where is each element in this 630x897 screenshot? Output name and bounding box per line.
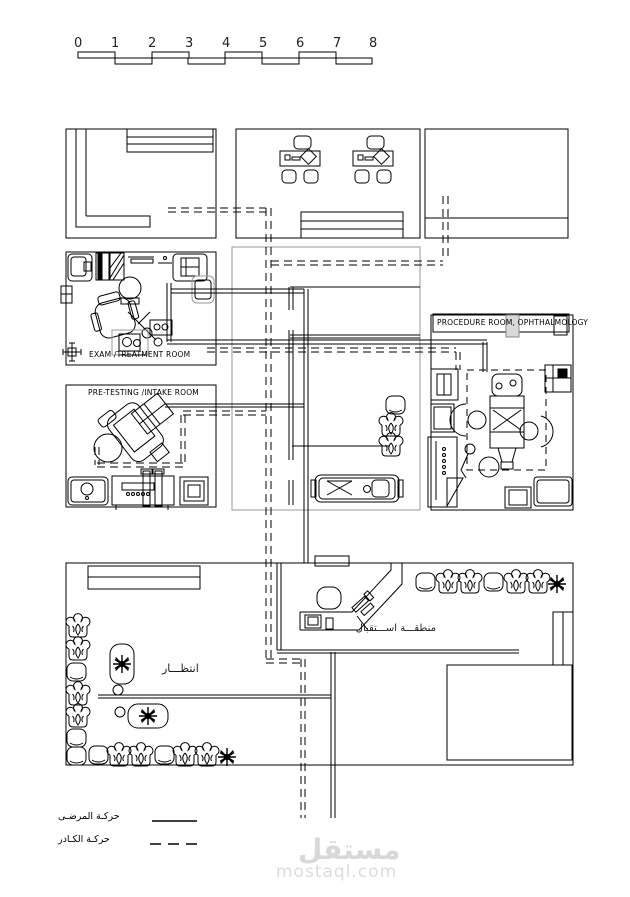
- scale-number: 6: [296, 36, 304, 51]
- exam-room-label: EXAM /TREATMENT ROOM: [89, 351, 190, 359]
- exam-stool: [119, 277, 141, 304]
- stretcher: [311, 475, 403, 502]
- pretest-counter-row: [68, 469, 208, 510]
- scale-number: 3: [185, 36, 193, 51]
- watermark: مستقل mostaql.com: [250, 834, 410, 889]
- exam-room: [61, 252, 216, 365]
- pretest-chair-cluster: [94, 393, 173, 467]
- reception-area-label: منطقـــة اســـتقبال: [360, 624, 436, 634]
- sink-unit: [68, 254, 92, 281]
- operating-table: [490, 374, 524, 469]
- procedure-room: [428, 314, 573, 510]
- central-hall-block: [232, 247, 420, 510]
- reception-block: [66, 556, 573, 766]
- inner-room: [447, 665, 572, 760]
- legend-patient-label: حركـة المرضـى: [58, 812, 128, 822]
- procedure-cabinets: [428, 365, 572, 508]
- reception-desk: [300, 563, 402, 630]
- scale-bar-graphic: [78, 52, 372, 64]
- exam-chair: [87, 288, 162, 355]
- scale-number: 7: [333, 36, 341, 51]
- coffee-tables: [110, 644, 168, 728]
- receptionist-chair: [317, 587, 341, 609]
- room-top-right: [425, 129, 568, 238]
- legend-staff-label: حركـة الكـادر: [58, 835, 128, 845]
- scale-number: 1: [111, 36, 119, 51]
- cabinets: [96, 253, 207, 281]
- procedure-room-label: PROCEDURE ROOM, OPHTHALMOLOGY: [437, 319, 588, 327]
- floor-plan-drawing: [0, 0, 630, 897]
- instrument-table: [150, 320, 172, 335]
- patient-path-lines: [165, 283, 487, 818]
- queue-barrier: [98, 695, 331, 698]
- scale-bar: 0 1 2 3 4 5 6 7 8: [0, 36, 630, 52]
- room-top-middle: [236, 129, 420, 238]
- scale-number: 8: [369, 36, 377, 51]
- pretesting-room-label: PRE-TESTING /INTAKE ROOM: [88, 389, 199, 397]
- reception-window: [315, 556, 349, 566]
- floor-plan-page: 0 1 2 3 4 5 6 7 8 EXAM /TREATMENT ROOM P…: [0, 0, 630, 897]
- surgeon-positions: [450, 404, 553, 478]
- watermark-domain: mostaql.com: [276, 864, 397, 881]
- waiting-area-label: انتظـــار: [162, 663, 199, 674]
- scale-number: 2: [148, 36, 156, 51]
- legend: حركـة المرضـى حركـة الكـادر: [0, 808, 240, 858]
- scale-number: 4: [222, 36, 230, 51]
- workstation-1: [280, 136, 320, 183]
- watermark-name: مستقل: [298, 836, 400, 864]
- room-top-left: [66, 129, 216, 238]
- scale-number: 5: [259, 36, 267, 51]
- workstation-2: [353, 136, 393, 183]
- scale-number: 0: [74, 36, 82, 51]
